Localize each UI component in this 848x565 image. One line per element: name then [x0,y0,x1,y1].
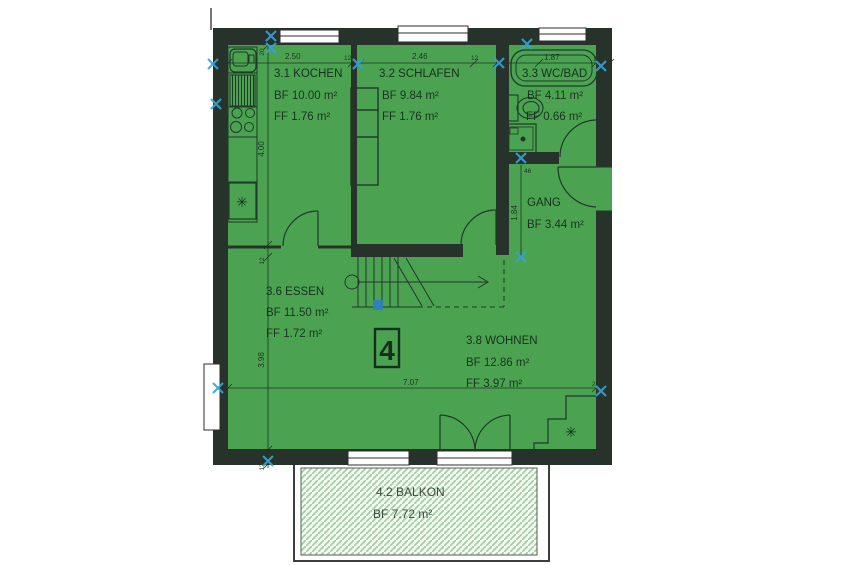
room-wcbad-bf: BF 4.11 m² [527,90,583,102]
room-gang-name: GANG [527,197,561,209]
wall-kochen-schlafen [351,45,357,245]
room-kochen-name: 3.1 KOCHEN [274,68,342,80]
dim-left-400: 4.00 [257,141,266,157]
dim-top-wall1: 12 [344,55,352,62]
room-wohnen-bf: BF 12.86 m² [466,357,529,369]
dim-gang-46: 46 [524,168,532,175]
balcony-door-threshold [437,451,512,465]
room-schlafen-name: 3.2 SCHLAFEN [379,68,460,80]
room-balkon-bf: BF 7.72 m² [373,507,432,521]
dim-bottom-707: 7.07 [403,378,419,387]
room-schlafen-ff: FF 1.76 m² [382,111,438,123]
room-wcbad-name: 3.3 WC/BAD [522,68,587,80]
wall-schlafen-gang [496,45,509,255]
unit-number: 4 [379,335,395,366]
room-wcbad-ff: FF 0.66 m² [526,111,582,123]
floor-plan-canvas: ✳ [0,0,848,565]
wall-schlafen-stair [351,244,463,257]
dim-left-12a: 12 [259,257,266,265]
window-schlafen [398,26,468,42]
dim-top-wall2: 12 [471,55,479,62]
appliance-icon [230,75,255,106]
room-gang-bf: BF 3.44 m² [527,219,584,231]
floor-plan-drawing: ✳ [0,0,848,565]
wall-bad-gang [503,152,559,164]
room-kochen-ff: FF 1.76 m² [274,111,330,123]
window-left-niche [204,364,220,430]
dim-gang-184: 1.84 [510,205,519,221]
dim-left-20: 20 [259,48,266,56]
window-bad [539,28,586,41]
dim-left-398: 3.98 [257,352,266,368]
fireplace-star-icon: ✳ [565,424,577,440]
room-essen-ff: FF 1.72 m² [266,328,322,340]
room-essen-name: 3.6 ESSEN [266,286,324,298]
blue-marker-square [373,300,383,310]
room-essen-bf: BF 11.50 m² [266,307,329,319]
stove-star-icon: ✳ [236,194,248,210]
room-kochen-bf: BF 10.00 m² [274,90,337,102]
dim-top-schlafen: 2.46 [412,52,428,61]
dim-top-bad: 1.87 [544,53,560,62]
dim-top-kochen: 2.50 [285,52,301,61]
window-bottom [348,451,409,465]
room-schlafen-bf: BF 9.84 m² [382,90,439,102]
room-balkon-name: 4.2 BALKON [376,485,445,499]
window-kitchen [280,30,339,43]
room-wohnen-name: 3.8 WOHNEN [466,335,538,347]
room-wohnen-ff: FF 3.97 m² [466,378,522,390]
